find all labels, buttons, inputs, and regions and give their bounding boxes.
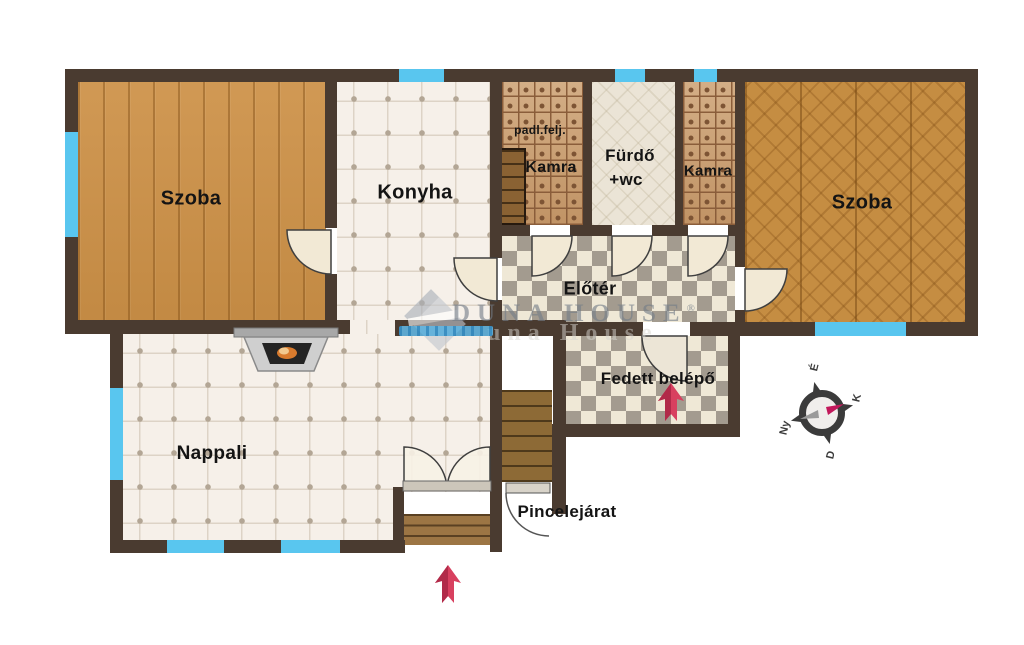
window xyxy=(815,322,906,336)
window xyxy=(281,540,340,553)
wall-szoba-left-bottom xyxy=(65,320,350,334)
wall-kamra-furdo xyxy=(583,82,592,225)
entrance-arrow-main xyxy=(435,565,461,603)
wall-szoba-konyha-a xyxy=(325,82,337,228)
basement-door-panel xyxy=(506,483,550,493)
wall-eloter-szoba-b xyxy=(735,310,745,322)
floor-plan: É K D Ny DUNA HOUSE® una House Szoba Kon… xyxy=(0,0,1024,645)
label-fedett-belepo: Fedett belépő xyxy=(601,369,715,389)
window xyxy=(694,69,717,82)
wall-eloter-szoba-a xyxy=(735,82,745,267)
entry-porch-landing xyxy=(404,492,490,514)
compass-south-label: D xyxy=(824,450,838,461)
basement-stairs xyxy=(500,390,552,482)
wall-eloter-top-3 xyxy=(652,225,688,236)
compass-north-label: É xyxy=(807,362,821,372)
window xyxy=(615,69,645,82)
label-eloter: Előtér xyxy=(564,279,617,300)
window xyxy=(167,540,224,553)
compass-rose: É K D Ny xyxy=(777,362,864,460)
label-nappali: Nappali xyxy=(177,443,248,465)
wall-eloter-top-2 xyxy=(570,225,612,236)
wall-szoba-konyha-b xyxy=(325,274,337,320)
compass-needle-west xyxy=(800,410,819,419)
label-kamra-left: Kamra xyxy=(525,159,576,177)
label-furdo-wc: +wc xyxy=(609,170,643,190)
label-szoba-left: Szoba xyxy=(161,188,221,211)
wall-porch-left xyxy=(393,487,404,553)
wall-shaft-right xyxy=(552,424,566,514)
compass-needle-east xyxy=(826,404,844,415)
entry-porch-steps xyxy=(404,514,490,545)
label-furdo: Fürdő xyxy=(605,146,655,166)
label-pincelejarat: Pincelejárat xyxy=(517,502,616,522)
label-szoba-right: Szoba xyxy=(832,192,892,215)
wall-fedett-right xyxy=(728,336,740,424)
compass-west-label: Ny xyxy=(777,419,792,436)
wall-fedett-left xyxy=(553,336,566,424)
window xyxy=(399,69,444,82)
room-floor-kamra-right xyxy=(683,82,735,225)
compass-east-label: K xyxy=(850,393,864,404)
wall-fedett-bottom xyxy=(553,424,740,437)
window xyxy=(65,132,78,237)
wall-furdo-kamra2 xyxy=(675,82,683,225)
watermark-echo: una House xyxy=(487,320,659,347)
watermark-registered: ® xyxy=(687,303,695,315)
wall-konyha-kamra-a xyxy=(490,82,502,258)
wall-fedett-top-right xyxy=(690,322,745,336)
label-konyha: Konyha xyxy=(377,182,452,205)
window xyxy=(110,388,123,480)
wall-eloter-top-1 xyxy=(502,225,530,236)
wall-right-outer xyxy=(965,69,978,336)
label-kamra-right: Kamra xyxy=(684,163,732,180)
wall-top xyxy=(65,69,978,82)
wall-nappali-bottom xyxy=(110,540,405,553)
watermark-blue-bar xyxy=(399,326,493,336)
label-padl-felj: padl.felj. xyxy=(514,123,566,137)
